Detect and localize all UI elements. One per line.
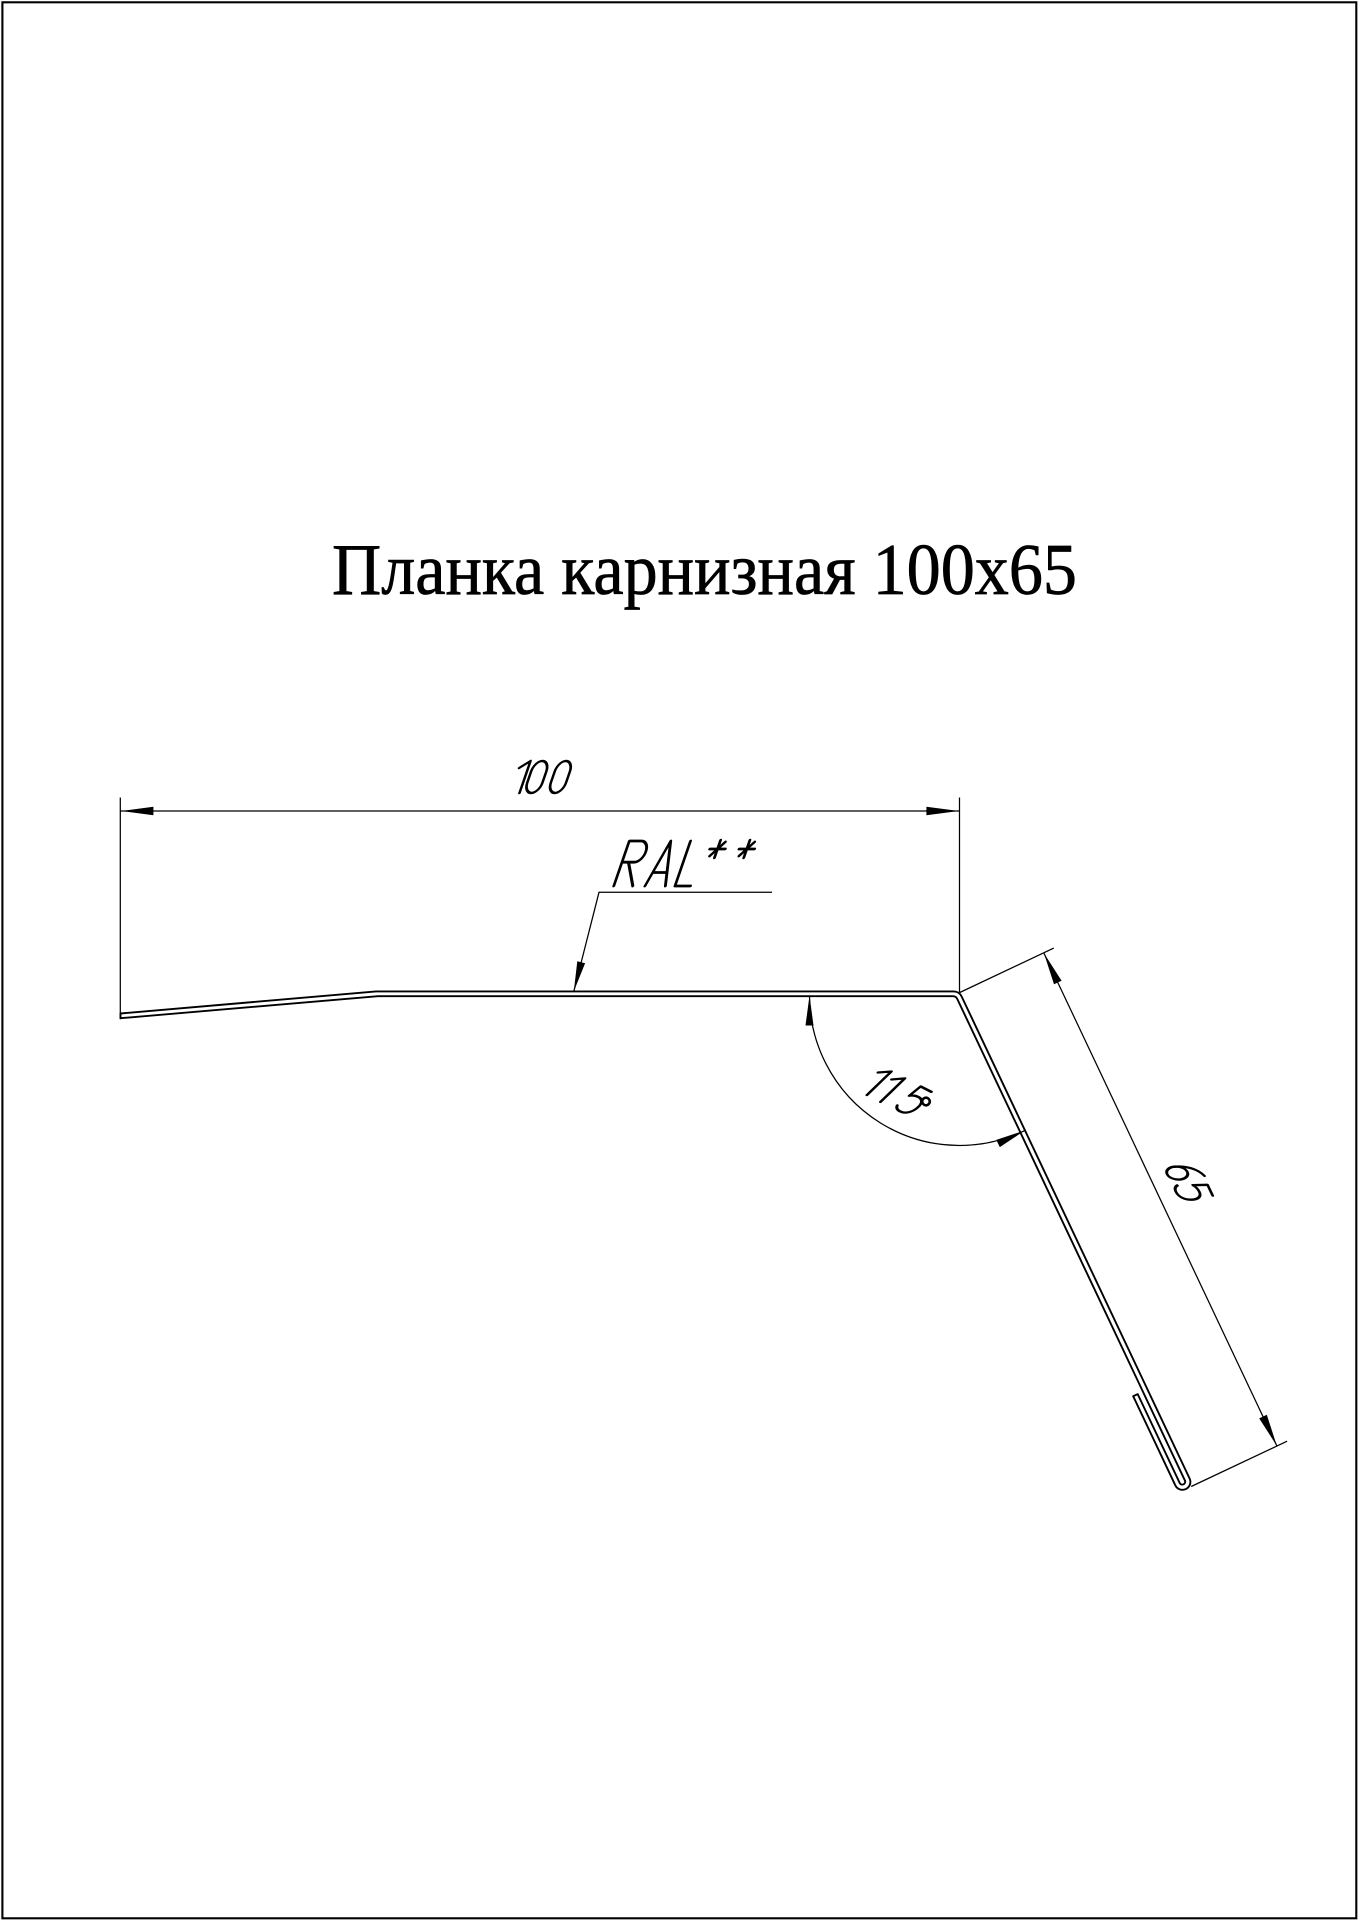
svg-text:Планка карнизная 100х65: Планка карнизная 100х65 xyxy=(332,529,1077,610)
